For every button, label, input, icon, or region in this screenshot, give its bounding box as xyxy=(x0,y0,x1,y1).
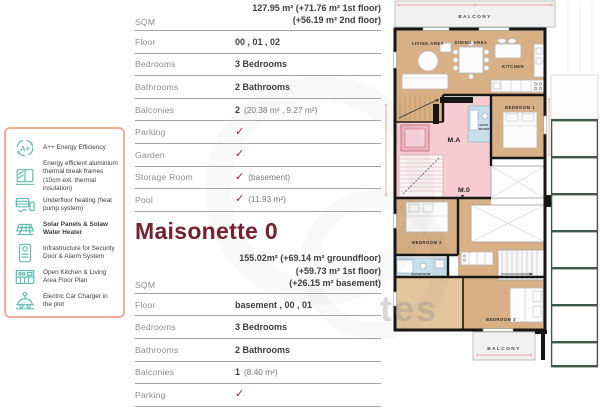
feature-label: Solar Panels & Solaw Water Heater xyxy=(43,221,118,238)
spec-row-balconies: Balconies 1 (8.40 m²) xyxy=(135,362,381,385)
svg-text:A+: A+ xyxy=(20,144,30,153)
elevator-shaft xyxy=(401,125,429,151)
value-text: 2 Bathrooms xyxy=(235,345,290,355)
row-value: ✓ (basement) xyxy=(235,172,290,183)
value-text: 1 xyxy=(235,367,240,377)
spec-tables: SQM 127.95 m² (+71.76 m² 1st floor) (+56… xyxy=(135,0,381,407)
value-muted: (11.93 m²) xyxy=(248,194,286,204)
check-mark: ✓ xyxy=(235,127,244,138)
row-value: ✓ (11.93 m²) xyxy=(235,194,286,205)
bedroom3-label: BEDROOM 3 xyxy=(486,317,516,322)
feature-item-solar: Solar Panels & Solaw Water Heater xyxy=(13,217,118,241)
sqm-line: (+56.19 m² 2nd floor) xyxy=(293,14,381,27)
row-value: 2 (20.38 m² , 9.27 m²) xyxy=(235,105,317,115)
feature-item-underfloor: Underfloor heating (heat pump system) xyxy=(13,193,118,217)
sqm-line: 155.02m² (+69.14 m² groundfloor) xyxy=(239,252,381,265)
row-value: ✓ xyxy=(235,127,244,138)
row-label: SQM xyxy=(135,280,235,290)
row-label: Balconies xyxy=(135,105,235,115)
row-label: Parking xyxy=(135,390,235,400)
kitchen-icon xyxy=(13,265,37,289)
maisonette-title: Maisonette 0 xyxy=(135,218,381,245)
value-text: 2 Bathrooms xyxy=(235,82,290,92)
car-charger-icon xyxy=(13,289,37,313)
bathroom-label: BATHROOM xyxy=(411,272,430,276)
row-label: Pool xyxy=(135,195,235,205)
check-mark: ✓ xyxy=(235,149,244,160)
value-muted: (8.40 m²) xyxy=(244,367,278,377)
check-mark: ✓ xyxy=(235,172,244,183)
sqm-line: 127.95 m² (+71.76 m² 1st floor) xyxy=(252,2,381,15)
value-text: 3 Bedrooms xyxy=(235,59,287,69)
bath-room-label: ROOM xyxy=(479,127,489,131)
row-label: Floor xyxy=(135,300,235,310)
features-panel: A+ A++ Energy Efficiency Energy efficien… xyxy=(4,127,125,318)
feature-label: Infrastructure for Security Door & Alarm… xyxy=(43,245,118,262)
spec-row-sqm: SQM 155.02m² (+69.14 m² groundfloor) (+5… xyxy=(135,248,381,294)
spec-table-maisonette: SQM 155.02m² (+69.14 m² groundfloor) (+5… xyxy=(135,248,381,407)
dining-area-label: DINING AREA xyxy=(454,40,487,45)
row-label: Balconies xyxy=(135,367,235,377)
feature-label: Electric Car Charger in the plot xyxy=(43,293,118,310)
unit-m0-label: M.0 xyxy=(458,187,470,194)
bedroom1-label: BEDROOM 1 xyxy=(505,105,535,110)
stairs-lower xyxy=(498,250,544,280)
balcony-bottom-label: BALCONY xyxy=(487,346,521,352)
bedroom1-furniture xyxy=(503,112,537,148)
balcony-top: BALCONY xyxy=(395,1,555,27)
value-text: 3 Bedrooms xyxy=(235,322,287,332)
feature-label: Energy efficient aluminium thermal break… xyxy=(43,160,118,193)
row-label: Bedrooms xyxy=(135,322,235,332)
spec-row-balconies: Balconies 2 (20.38 m² , 9.27 m²) xyxy=(135,99,381,122)
feature-item-car-charger: Electric Car Charger in the plot xyxy=(13,289,118,313)
row-value: 1 (8.40 m²) xyxy=(235,367,278,377)
spec-row-bedrooms: Bedrooms 3 Bedrooms xyxy=(135,54,381,77)
living-area-label: LIVING AREA xyxy=(412,41,444,46)
row-label: Bathrooms xyxy=(135,345,235,355)
energy-rating-icon: A+ xyxy=(13,136,37,160)
feature-item-frames: Energy efficient aluminium thermal break… xyxy=(13,160,118,193)
feature-item-security: Infrastructure for Security Door & Alarm… xyxy=(13,241,118,265)
check-mark: ✓ xyxy=(235,194,244,205)
stairs-pink xyxy=(399,155,443,197)
row-label: Storage Room xyxy=(135,172,235,182)
void-room-2 xyxy=(471,205,545,242)
sqm-line: (+59.73 m² 1st floor) xyxy=(296,265,381,278)
spec-row-sqm: SQM 127.95 m² (+71.76 m² 1st floor) (+56… xyxy=(135,0,381,31)
row-label: SQM xyxy=(135,17,235,27)
value-text: basement , 00 , 01 xyxy=(235,300,312,310)
spec-row-floor: Floor 00 , 01 , 02 xyxy=(135,31,381,54)
security-icon xyxy=(13,241,37,265)
lower-kitchen-counter xyxy=(461,252,493,265)
solar-panel-icon xyxy=(13,217,37,241)
balcony-top-label: BALCONY xyxy=(458,14,492,20)
row-value: 2 Bathrooms xyxy=(235,82,290,92)
row-label: Parking xyxy=(135,127,235,137)
value-text: 00 , 01 , 02 xyxy=(235,37,280,47)
window-frame-icon xyxy=(13,165,37,189)
spec-row-garden: Garden ✓ xyxy=(135,144,381,167)
row-value: 155.02m² (+69.14 m² groundfloor) (+59.73… xyxy=(235,252,381,290)
kitchen-label: KITCHEN xyxy=(502,64,524,69)
spec-row-bathrooms: Bathrooms 2 Bathrooms xyxy=(135,76,381,99)
spec-table-unit-top: SQM 127.95 m² (+71.76 m² 1st floor) (+56… xyxy=(135,0,381,212)
unit-ma-label: M.A xyxy=(447,137,460,144)
pergola-louvers xyxy=(551,75,598,367)
row-label: Garden xyxy=(135,150,235,160)
row-value: 127.95 m² (+71.76 m² 1st floor) (+56.19 … xyxy=(235,2,381,27)
row-value: 00 , 01 , 02 xyxy=(235,37,280,47)
construction-lines xyxy=(568,2,592,72)
bath-room-small: BATH ROOM xyxy=(468,106,491,142)
void-room-1 xyxy=(491,166,545,198)
row-label: Bedrooms xyxy=(135,59,235,69)
spec-row-storage: Storage Room ✓ (basement) xyxy=(135,167,381,190)
feature-label: Open Kitchen & Living Area Floor Plan xyxy=(43,269,118,286)
sqm-line: (+26.15 m² basement) xyxy=(289,277,381,290)
spec-row-bedrooms: Bedrooms 3 Bedrooms xyxy=(135,316,381,339)
row-value: 3 Bedrooms xyxy=(235,59,287,69)
value-muted: (20.38 m² , 9.27 m²) xyxy=(244,105,317,115)
floorplan-image: BALCONY xyxy=(383,0,600,400)
spec-row-pool: Pool ✓ (11.93 m²) xyxy=(135,189,381,212)
bathroom-lower: BATHROOM xyxy=(395,258,448,277)
value-muted: (basement) xyxy=(248,172,290,182)
row-label: Bathrooms xyxy=(135,82,235,92)
underfloor-heating-icon xyxy=(13,193,37,217)
row-value: 2 Bathrooms xyxy=(235,345,290,355)
spec-row-bathrooms: Bathrooms 2 Bathrooms xyxy=(135,339,381,362)
feature-item-energy: A+ A++ Energy Efficiency xyxy=(13,136,118,160)
spec-row-parking: Parking ✓ xyxy=(135,121,381,144)
bedroom2-furniture xyxy=(406,202,448,232)
feature-label: Underfloor heating (heat pump system) xyxy=(43,197,118,214)
row-value: ✓ xyxy=(235,149,244,160)
row-value: 3 Bedrooms xyxy=(235,322,287,332)
feature-item-kitchen: Open Kitchen & Living Area Floor Plan xyxy=(13,265,118,289)
balcony-bottom: BALCONY xyxy=(473,332,535,360)
bedroom2-label: BEDROOM 2 xyxy=(412,240,442,245)
spec-row-parking: Parking ✓ xyxy=(135,384,381,407)
value-text: 2 xyxy=(235,105,240,115)
row-label: Floor xyxy=(135,37,235,47)
row-value: basement , 00 , 01 xyxy=(235,300,312,310)
spec-row-floor: Floor basement , 00 , 01 xyxy=(135,294,381,317)
feature-label: A++ Energy Efficiency xyxy=(43,144,106,152)
check-mark: ✓ xyxy=(235,389,244,400)
row-value: ✓ xyxy=(235,389,244,400)
